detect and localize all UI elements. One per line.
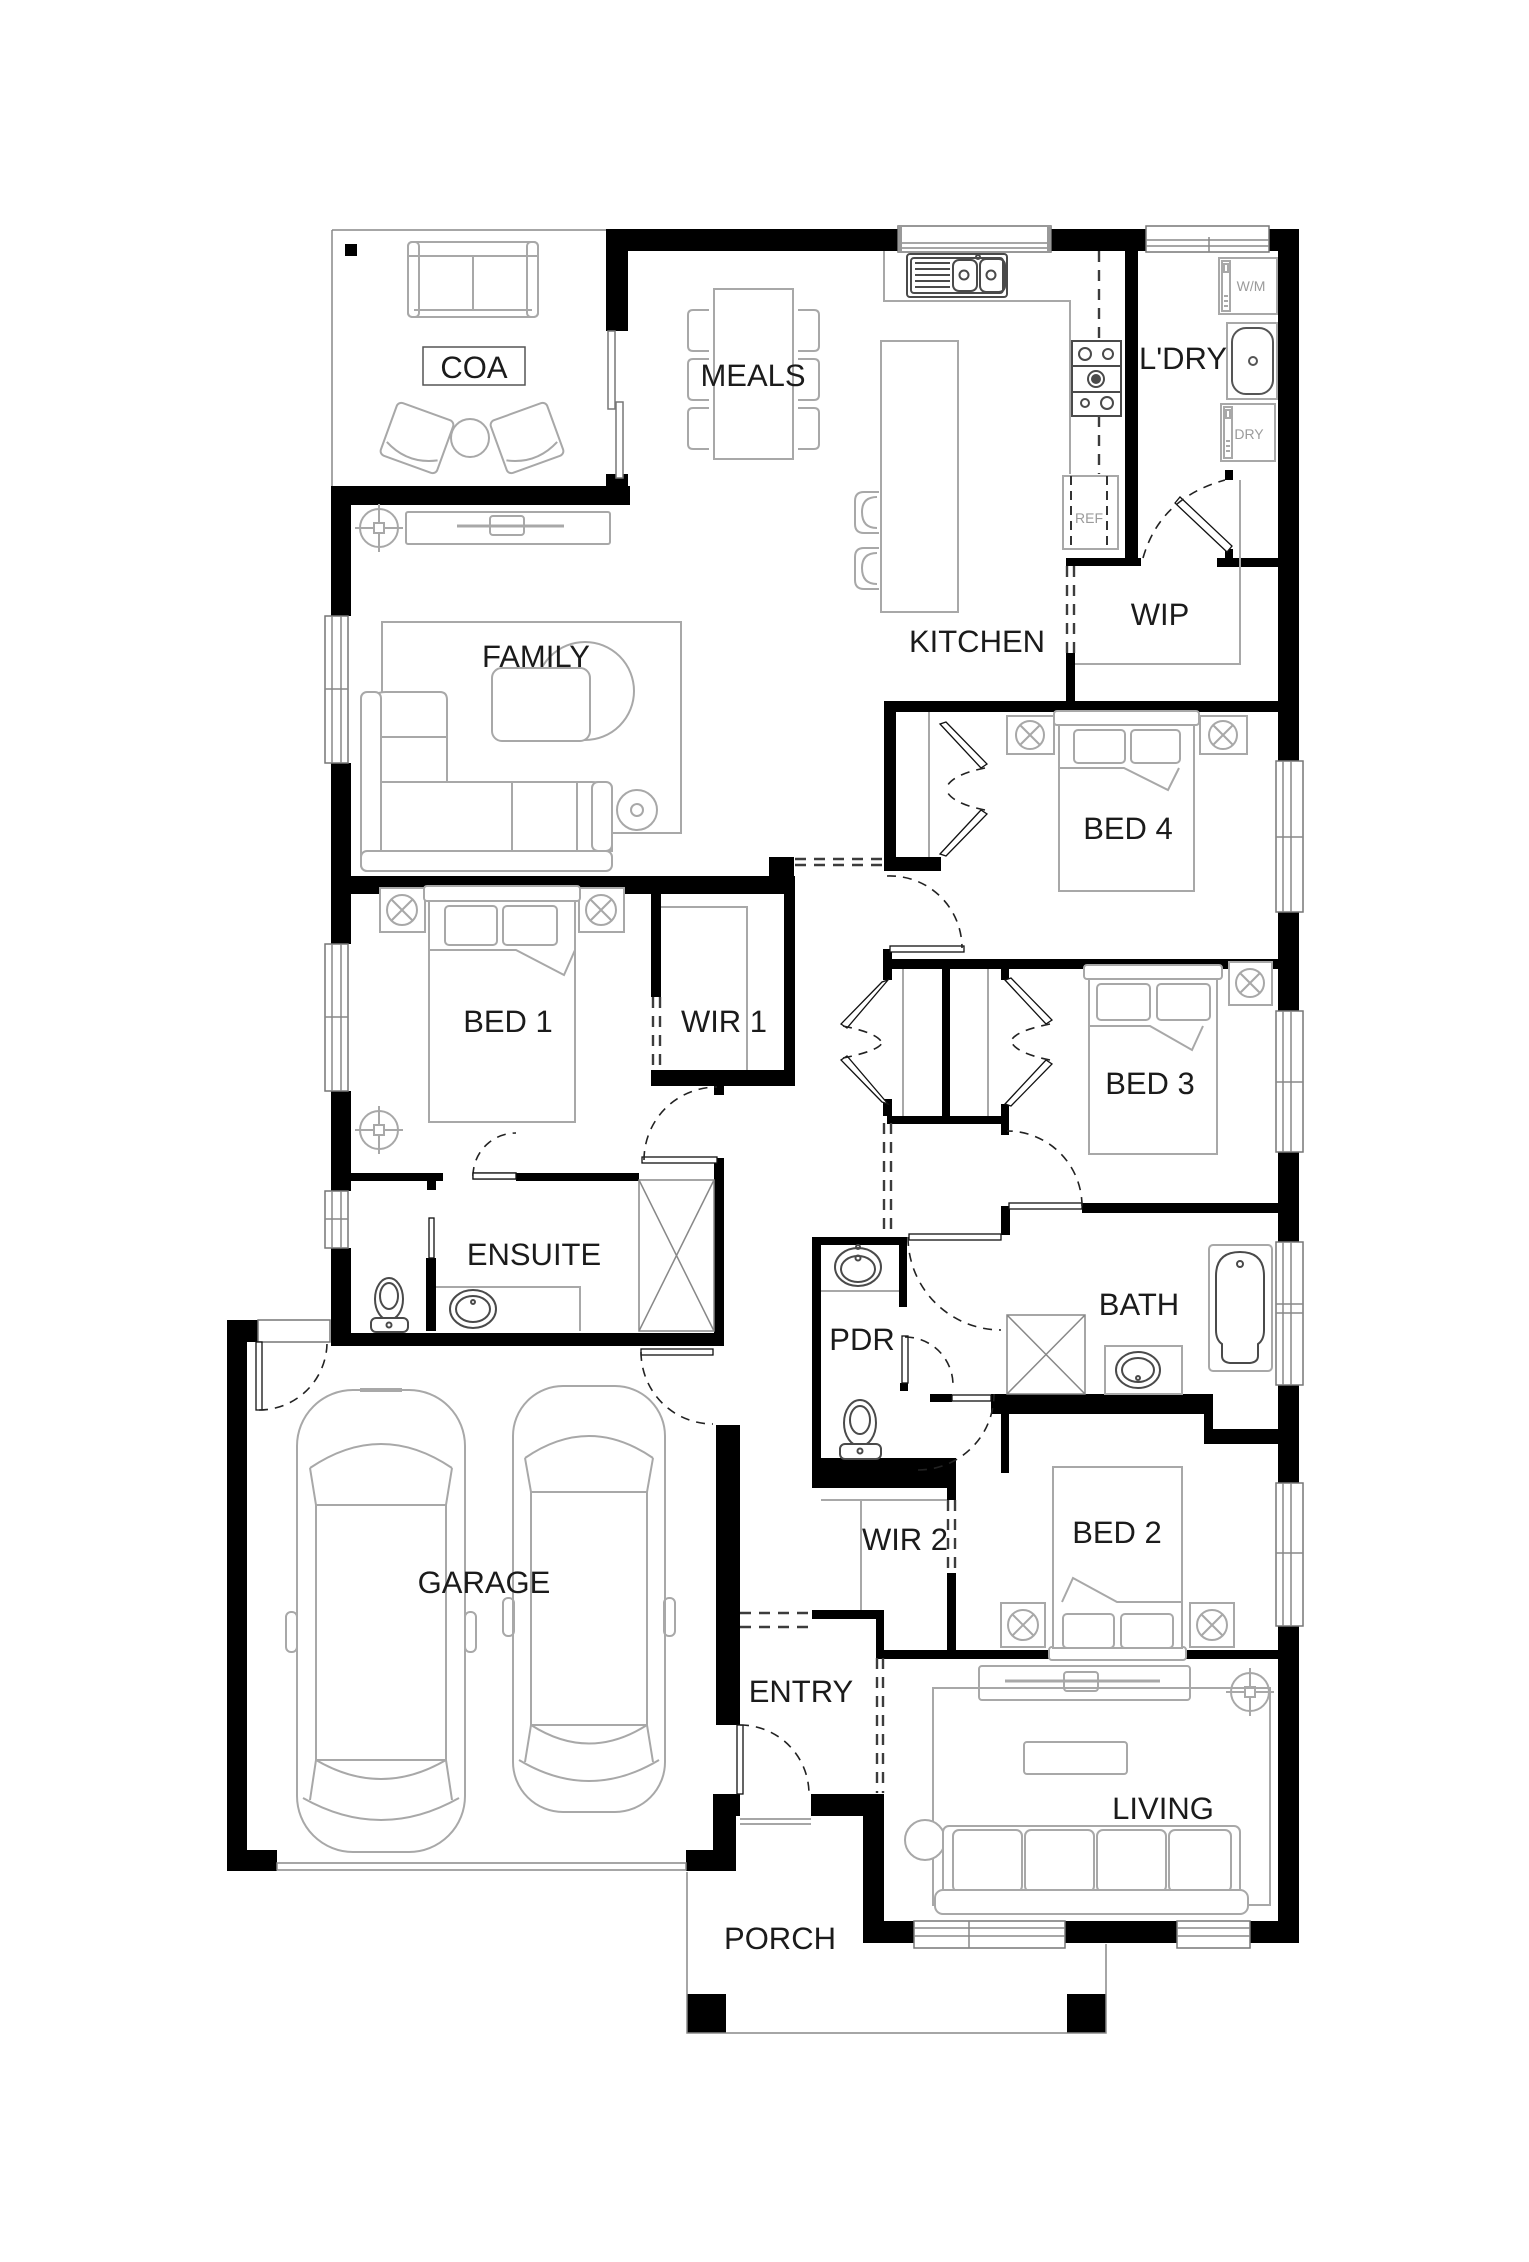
svg-text:FAMILY: FAMILY xyxy=(482,639,590,674)
svg-text:WIP: WIP xyxy=(1131,597,1190,632)
svg-text:PDR: PDR xyxy=(829,1322,894,1357)
svg-text:GARAGE: GARAGE xyxy=(418,1565,551,1600)
svg-text:BED 1: BED 1 xyxy=(463,1004,553,1039)
svg-text:WIR 2: WIR 2 xyxy=(862,1522,948,1557)
svg-text:MEALS: MEALS xyxy=(700,358,805,393)
svg-text:BATH: BATH xyxy=(1099,1287,1179,1322)
svg-text:REF: REF xyxy=(1075,510,1103,526)
svg-text:DRY: DRY xyxy=(1234,426,1264,442)
svg-text:ENTRY: ENTRY xyxy=(749,1674,854,1709)
svg-text:LIVING: LIVING xyxy=(1112,1791,1214,1826)
svg-text:WIR 1: WIR 1 xyxy=(681,1004,767,1039)
svg-text:ENSUITE: ENSUITE xyxy=(467,1237,601,1272)
svg-text:BED 2: BED 2 xyxy=(1072,1515,1162,1550)
svg-text:KITCHEN: KITCHEN xyxy=(909,624,1045,659)
svg-text:COA: COA xyxy=(440,350,508,385)
svg-text:PORCH: PORCH xyxy=(724,1921,836,1956)
svg-text:L'DRY: L'DRY xyxy=(1139,341,1227,376)
svg-text:BED 3: BED 3 xyxy=(1105,1066,1195,1101)
svg-text:W/M: W/M xyxy=(1237,278,1266,294)
svg-text:BED 4: BED 4 xyxy=(1083,811,1173,846)
